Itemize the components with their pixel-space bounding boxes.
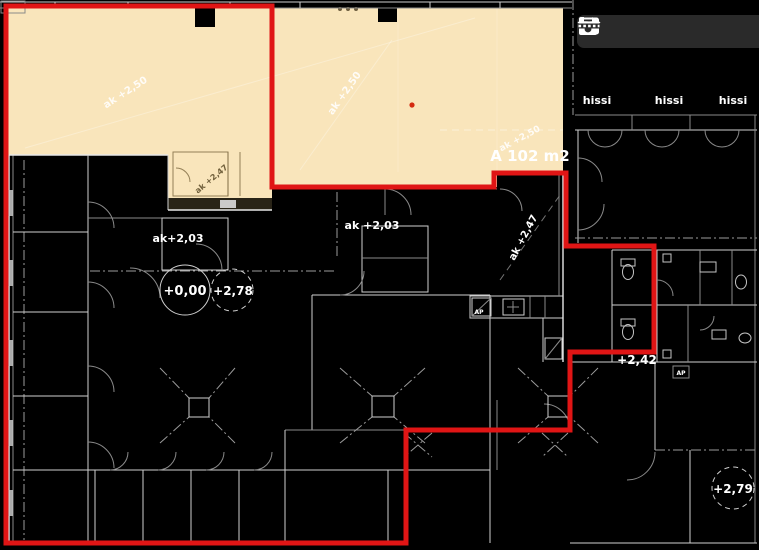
floorplan-canvas[interactable]: hissi hissi hissi A 102 m2 ak +2,50 ak +… [0, 0, 759, 550]
ceiling-height-label: ak+2,03 [152, 232, 203, 245]
undo-button[interactable] [627, 18, 663, 45]
toolbar [577, 15, 759, 48]
app-window: hissi hissi hissi A 102 m2 ak +2,50 ak +… [0, 0, 759, 550]
level-label: +2,78 [213, 284, 253, 298]
elevator-label: hissi [655, 94, 683, 107]
equipment-label: AP [474, 309, 484, 316]
ceiling-height-label: ak +2,03 [345, 219, 400, 232]
fit-button[interactable] [718, 18, 754, 45]
equipment-label: AP [676, 370, 686, 377]
level-label: +2,79 [713, 482, 753, 496]
elevator-label: hissi [583, 94, 611, 107]
level-label: +2,42 [617, 353, 657, 367]
level-label: +0,00 [164, 284, 207, 299]
elevator-label: hissi [719, 94, 747, 107]
measure-dot [409, 102, 414, 107]
redo-button[interactable] [673, 18, 709, 45]
